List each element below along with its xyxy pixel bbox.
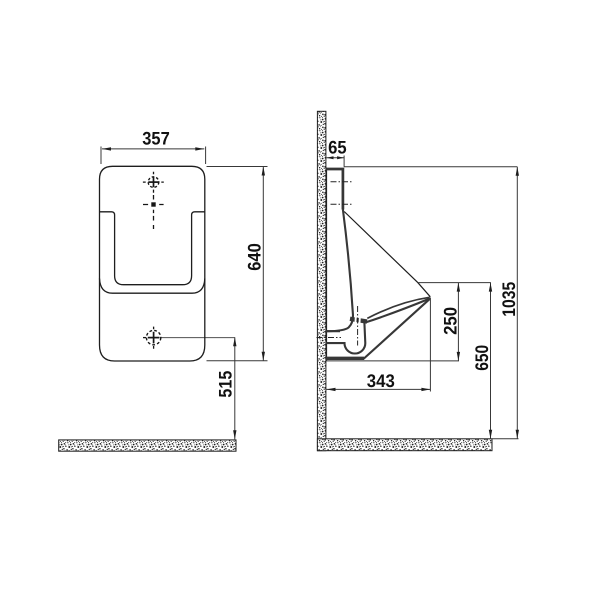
svg-text:65: 65 xyxy=(328,138,347,158)
svg-text:357: 357 xyxy=(142,128,170,148)
svg-text:650: 650 xyxy=(472,345,492,371)
svg-text:640: 640 xyxy=(245,243,265,271)
svg-text:343: 343 xyxy=(367,371,395,391)
svg-text:250: 250 xyxy=(440,307,460,335)
svg-text:515: 515 xyxy=(215,371,235,398)
svg-text:1035: 1035 xyxy=(499,282,519,317)
